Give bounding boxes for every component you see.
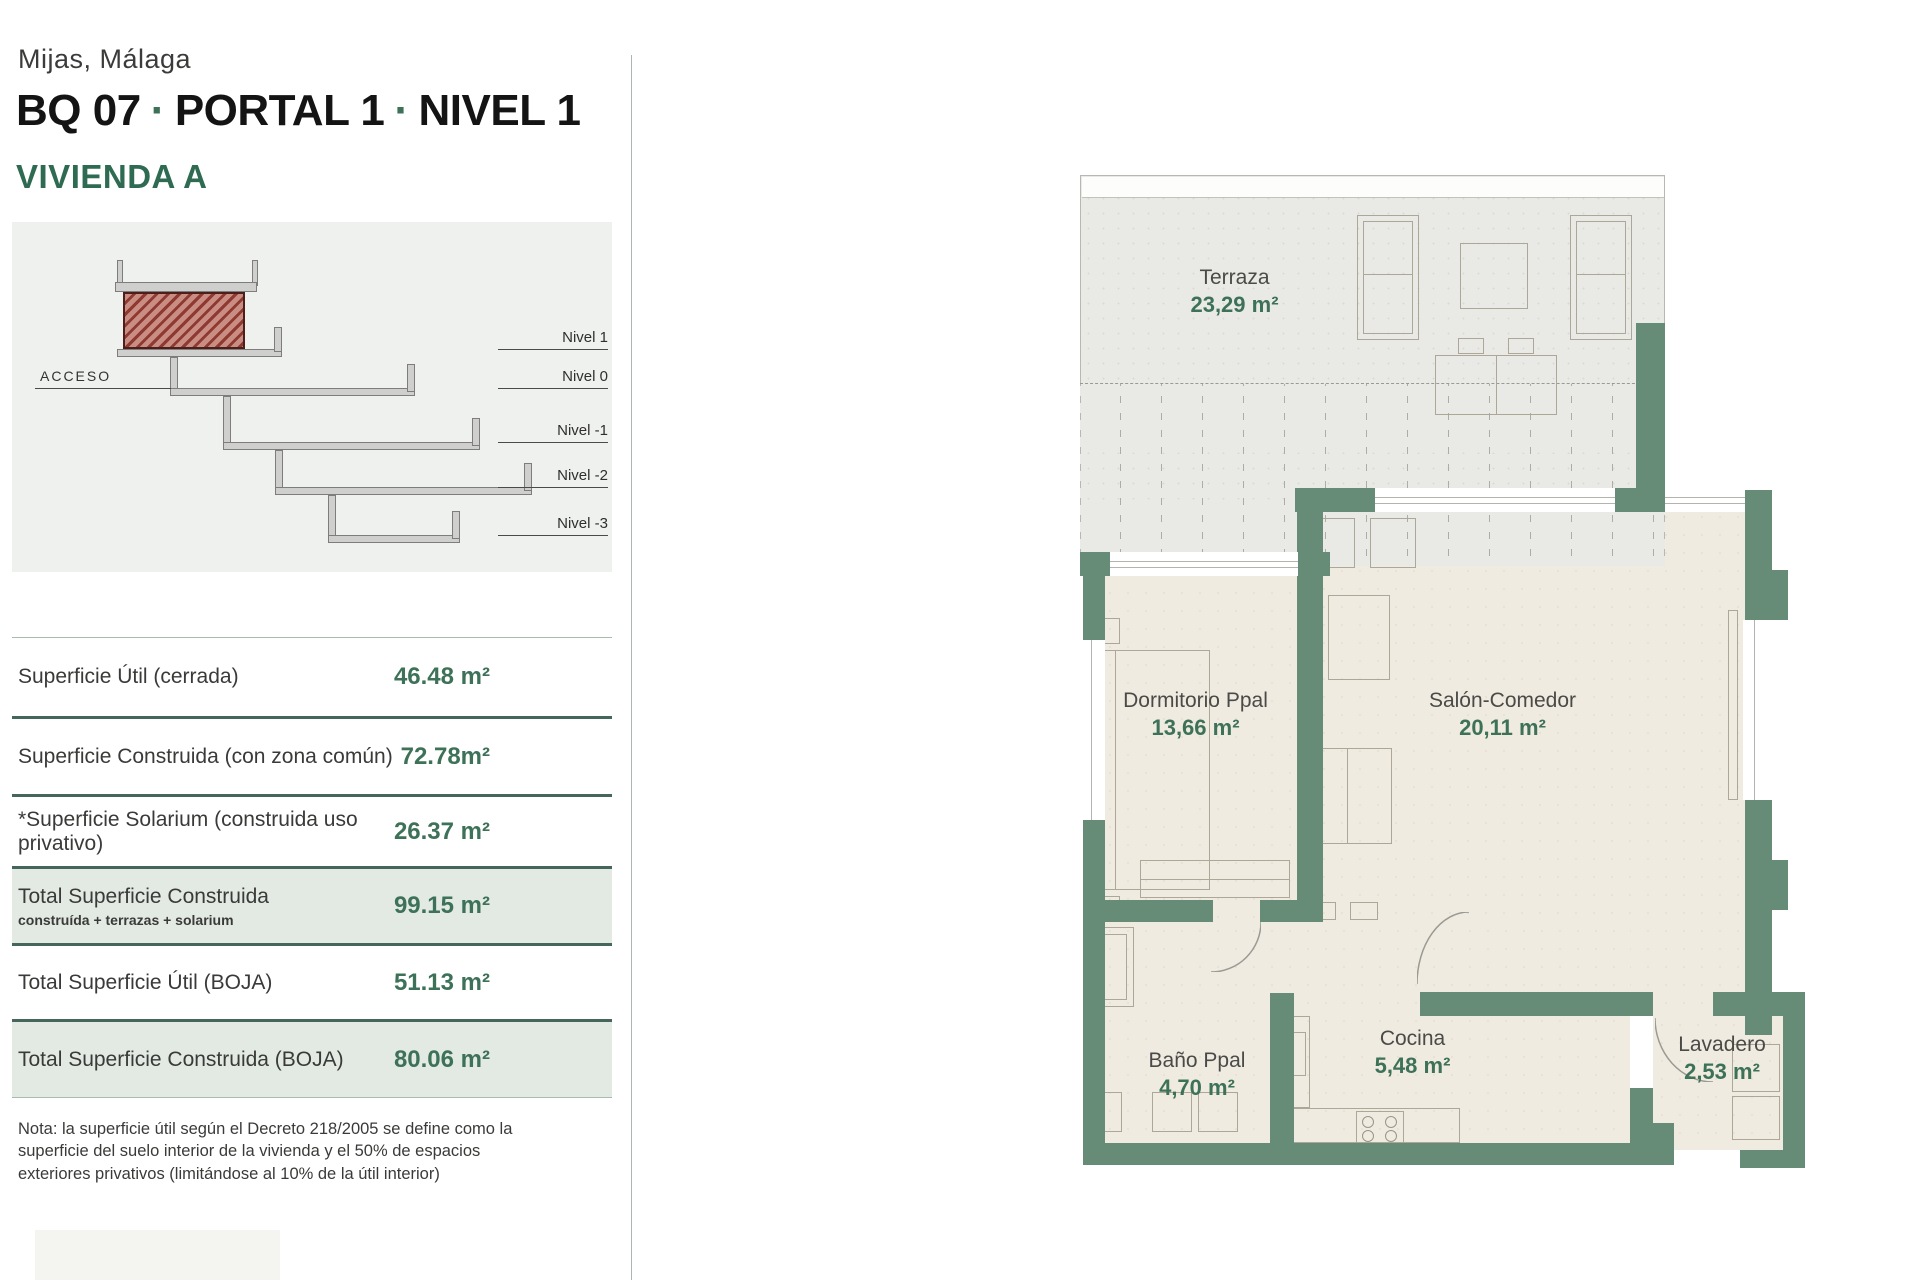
room-area: 23,29 m²	[1152, 291, 1317, 319]
room-name: Lavadero	[1642, 1032, 1802, 1058]
separator-dot: ·	[394, 86, 408, 135]
room-label-lavadero: Lavadero 2,53 m²	[1642, 1032, 1802, 1086]
outdoor-chair	[1508, 338, 1534, 354]
room-name: Cocina	[1335, 1026, 1490, 1052]
table-row: Total Superficie Útil (BOJA) 51.13 m²	[12, 946, 612, 1019]
section-wall	[328, 495, 336, 537]
level-label-0: Nivel 0	[498, 368, 608, 385]
row-value: 99.15 m²	[394, 892, 490, 920]
bedroom-window	[1110, 552, 1298, 576]
kitchen-laundry-wall	[1420, 992, 1653, 1016]
bath-kitchen-divider-wall	[1270, 993, 1294, 1143]
row-value: 51.13 m²	[394, 969, 490, 997]
room-area: 5,48 m²	[1335, 1052, 1490, 1080]
section-roof-slab	[115, 282, 257, 292]
section-slab-n0	[170, 388, 415, 396]
row-label-group: Total Superficie Construida construída +…	[18, 885, 269, 928]
section-slab-nm1	[223, 442, 480, 450]
west-window	[1080, 640, 1105, 820]
level-label-m3: Nivel -3	[498, 515, 608, 532]
room-label-bano: Baño Ppal 4,70 m²	[1122, 1048, 1272, 1102]
room-label-dormitorio: Dormitorio Ppal 13,66 m²	[1108, 688, 1283, 742]
south-wall	[1083, 1143, 1673, 1165]
row-label: Total Superficie Construida (BOJA)	[18, 1048, 344, 1072]
title-part-block: BQ 07	[16, 86, 141, 135]
section-slab-nm3	[328, 535, 460, 543]
room-label-terraza: Terraza 23,29 m²	[1152, 265, 1317, 319]
east-wall-notch	[1772, 860, 1788, 910]
level-underline	[498, 349, 608, 350]
section-wall	[275, 450, 283, 489]
level-underline	[498, 535, 608, 536]
row-label: *Superficie Solarium (construida uso pri…	[18, 808, 394, 856]
stove	[1356, 1111, 1404, 1143]
terrace-table	[1460, 243, 1528, 309]
bedroom-south-wall	[1083, 900, 1213, 922]
room-label-cocina: Cocina 5,48 m²	[1335, 1026, 1490, 1080]
table-row-highlight: Total Superficie Construida construída +…	[12, 869, 612, 943]
living-terrace-window	[1375, 488, 1615, 512]
laundry-south-wall	[1740, 1150, 1805, 1168]
table-bottom-rule	[12, 1097, 612, 1098]
armchair	[1370, 518, 1416, 568]
section-stub	[407, 364, 415, 392]
wardrobe	[1140, 860, 1290, 898]
level-underline	[498, 388, 608, 389]
room-label-salon: Salón-Comedor 20,11 m²	[1410, 688, 1595, 742]
acceso-line	[35, 388, 171, 389]
row-label: Total Superficie Útil (BOJA)	[18, 971, 272, 995]
brochure-page: Mijas, Málaga BQ 07·PORTAL 1·NIVEL 1 VIV…	[0, 0, 1920, 1280]
section-slab-n1	[117, 349, 282, 357]
section-stub	[274, 327, 282, 352]
acceso-label: ACCESO	[40, 368, 111, 384]
coffee-table	[1328, 595, 1390, 680]
living-corner-window	[1665, 488, 1745, 512]
legal-note: Nota: la superficie útil según el Decret…	[18, 1118, 533, 1185]
stove-burner	[1362, 1116, 1374, 1128]
room-name: Salón-Comedor	[1410, 688, 1595, 714]
east-window	[1743, 620, 1773, 800]
row-value: 46.48 m²	[394, 663, 490, 691]
sun-lounger	[1357, 215, 1419, 340]
kitchen-door-arc	[1417, 912, 1469, 984]
room-area: 2,53 m²	[1642, 1058, 1802, 1086]
row-value: 72.78m²	[401, 743, 490, 771]
bedroom-south-wall	[1260, 900, 1323, 922]
outdoor-chair	[1458, 338, 1484, 354]
laundry-west-wall	[1630, 1088, 1653, 1165]
row-label: Superficie Útil (cerrada)	[18, 665, 239, 689]
page-title: BQ 07·PORTAL 1·NIVEL 1	[16, 86, 580, 136]
room-name: Terraza	[1152, 265, 1317, 291]
section-stub	[472, 418, 480, 446]
stove-burner	[1362, 1130, 1374, 1142]
outdoor-dining-table	[1435, 355, 1557, 415]
row-label: Superficie Construida (con zona común)	[18, 745, 393, 769]
room-name: Dormitorio Ppal	[1108, 688, 1283, 714]
unit-title: VIVIENDA A	[16, 158, 207, 196]
title-part-level: NIVEL 1	[419, 86, 581, 135]
laundry-appliance	[1732, 1096, 1780, 1140]
east-wall-notch	[1772, 570, 1788, 620]
level-label-1: Nivel 1	[498, 329, 608, 346]
laundry-north-wall	[1713, 992, 1805, 1016]
tv-unit	[1728, 610, 1738, 800]
level-label-m2: Nivel -2	[498, 467, 608, 484]
row-sublabel: construída + terrazas + solarium	[18, 912, 269, 928]
title-part-portal: PORTAL 1	[175, 86, 385, 135]
row-value: 80.06 m²	[394, 1046, 490, 1074]
room-name: Baño Ppal	[1122, 1048, 1272, 1074]
section-stub	[452, 511, 460, 539]
section-wall	[223, 396, 231, 444]
room-area: 4,70 m²	[1122, 1074, 1272, 1102]
terrace-edge-band	[1082, 177, 1664, 198]
table-row-highlight: Total Superficie Construida (BOJA) 80.06…	[12, 1022, 612, 1097]
sun-lounger	[1570, 215, 1632, 340]
living-north-wall	[1615, 488, 1665, 512]
vertical-divider	[631, 55, 632, 1280]
row-value: 26.37 m²	[394, 818, 490, 846]
highlighted-unit-hatch	[123, 292, 245, 349]
level-label-m1: Nivel -1	[498, 422, 608, 439]
bed	[1090, 650, 1210, 890]
bedroom-living-divider-wall	[1297, 488, 1323, 922]
building-section-diagram: ACCESO Nivel 1 Nivel 0 Nivel -1 Nivel -2…	[12, 222, 612, 572]
dining-chair	[1350, 902, 1378, 920]
terrace-side-wall	[1636, 323, 1665, 512]
room-area: 20,11 m²	[1410, 714, 1595, 742]
table-row: *Superficie Solarium (construida uso pri…	[12, 797, 612, 866]
room-area: 13,66 m²	[1108, 714, 1283, 742]
stove-burner	[1385, 1130, 1397, 1142]
stove-burner	[1385, 1116, 1397, 1128]
table-row: Superficie Construida (con zona común) 7…	[12, 719, 612, 794]
row-label: Total Superficie Construida	[18, 885, 269, 909]
section-slab-nm2	[275, 487, 532, 495]
floor-plan: Terraza 23,29 m² Dormitorio Ppal 13,66 m…	[1080, 170, 1810, 1190]
level-underline	[498, 487, 608, 488]
level-underline	[498, 442, 608, 443]
location-text: Mijas, Málaga	[18, 44, 191, 75]
bottom-placeholder-box	[35, 1230, 280, 1280]
section-wall	[170, 357, 178, 392]
bedroom-door-arc	[1211, 922, 1261, 972]
table-row: Superficie Útil (cerrada) 46.48 m²	[12, 637, 612, 716]
separator-dot: ·	[151, 86, 165, 135]
